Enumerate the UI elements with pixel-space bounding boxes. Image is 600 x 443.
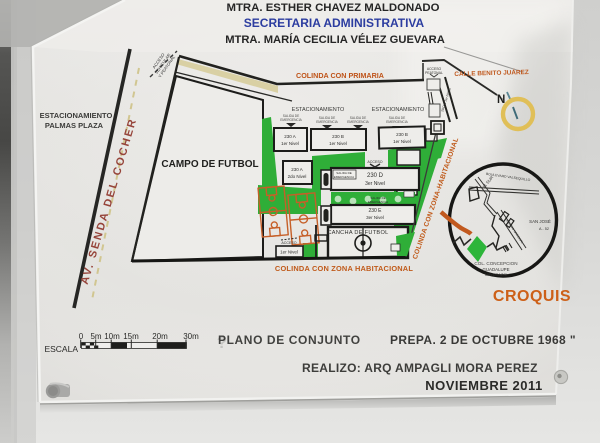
- svg-text:ESTACIONAMIENTO: ESTACIONAMIENTO: [292, 107, 345, 113]
- svg-text:EMERGENCIA: EMERGENCIA: [334, 175, 354, 179]
- svg-text:SAN JOSÉ: SAN JOSÉ: [529, 219, 551, 224]
- svg-text:3er Nivel: 3er Nivel: [366, 215, 384, 220]
- svg-text:230 B: 230 B: [396, 132, 408, 137]
- svg-text:CANCHA DE FUTBOL: CANCHA DE FUTBOL: [327, 230, 388, 236]
- svg-text:A - 52: A - 52: [539, 227, 549, 231]
- svg-text:PREPA. 2 DE OCTUBRE 1968 ": PREPA. 2 DE OCTUBRE 1968 ": [390, 333, 576, 347]
- svg-text:PLANO DE CONJUNTO: PLANO DE CONJUNTO: [218, 333, 361, 347]
- svg-text:EMERGENCIA: EMERGENCIA: [280, 118, 302, 122]
- svg-text:0: 0: [79, 332, 84, 341]
- svg-text:PALMAS PLAZA: PALMAS PLAZA: [45, 121, 104, 130]
- svg-text:COL. CONCEPCION: COL. CONCEPCION: [474, 261, 517, 266]
- svg-text:230 A: 230 A: [291, 167, 303, 172]
- svg-text:3er Nivel: 3er Nivel: [365, 181, 385, 187]
- svg-text:GUADALUPE: GUADALUPE: [482, 267, 509, 272]
- svg-text:EMERGENCIA: EMERGENCIA: [347, 120, 369, 124]
- svg-text:2do Nivel: 2do Nivel: [288, 174, 307, 179]
- svg-text:PEATONAL: PEATONAL: [425, 71, 443, 75]
- svg-text:MTRA. ESTHER CHAVEZ MALDONADO: MTRA. ESTHER CHAVEZ MALDONADO: [226, 2, 439, 14]
- svg-text:1er Nivel: 1er Nivel: [281, 141, 299, 146]
- svg-text:ESTACIONAMIENTO: ESTACIONAMIENTO: [372, 107, 425, 113]
- svg-text:1er Nivel: 1er Nivel: [393, 139, 411, 144]
- svg-text:230 D: 230 D: [367, 173, 384, 179]
- svg-text:ESCALA: ESCALA: [44, 344, 78, 354]
- svg-text:EMERGENCIA: EMERGENCIA: [368, 200, 388, 204]
- svg-text:NOVIEMBRE 2011: NOVIEMBRE 2011: [425, 378, 543, 393]
- svg-text:MTRA. MARÍA CECILIA VÉLEZ GUEV: MTRA. MARÍA CECILIA VÉLEZ GUEVARA: [225, 33, 445, 46]
- svg-text:10m: 10m: [104, 332, 120, 341]
- svg-text:COLINDA CON PRIMARIA: COLINDA CON PRIMARIA: [296, 71, 384, 80]
- svg-text:230 B: 230 B: [332, 134, 344, 139]
- svg-text:MAYORAZGI: MAYORAZGI: [485, 273, 508, 277]
- svg-text:SECRETARIA ADMINISTRATIVA: SECRETARIA ADMINISTRATIVA: [244, 16, 425, 30]
- svg-text:230 E: 230 E: [368, 208, 382, 214]
- svg-text:ACCESO: ACCESO: [281, 241, 296, 245]
- svg-text:REALIZO: ARQ AMPAGLI MORA PERE: REALIZO: ARQ AMPAGLI MORA PEREZ: [302, 361, 538, 375]
- svg-text:CROQUIS: CROQUIS: [493, 288, 571, 305]
- svg-text:EMERGENCIA: EMERGENCIA: [316, 120, 338, 124]
- svg-text:1er Nivel: 1er Nivel: [280, 250, 298, 255]
- svg-text:ACCESO: ACCESO: [367, 160, 382, 164]
- svg-text:ESTACIONAMIENTO: ESTACIONAMIENTO: [40, 111, 113, 120]
- svg-text:CAMPO DE FUTBOL: CAMPO DE FUTBOL: [161, 159, 258, 170]
- svg-text:20m: 20m: [152, 332, 168, 341]
- svg-text:230 A: 230 A: [284, 134, 296, 139]
- svg-text:EMERGENCIA: EMERGENCIA: [386, 120, 408, 124]
- svg-text:1er Nivel: 1er Nivel: [329, 141, 347, 146]
- svg-text:COLINDA CON ZONA HABITACIONAL: COLINDA CON ZONA HABITACIONAL: [275, 264, 413, 273]
